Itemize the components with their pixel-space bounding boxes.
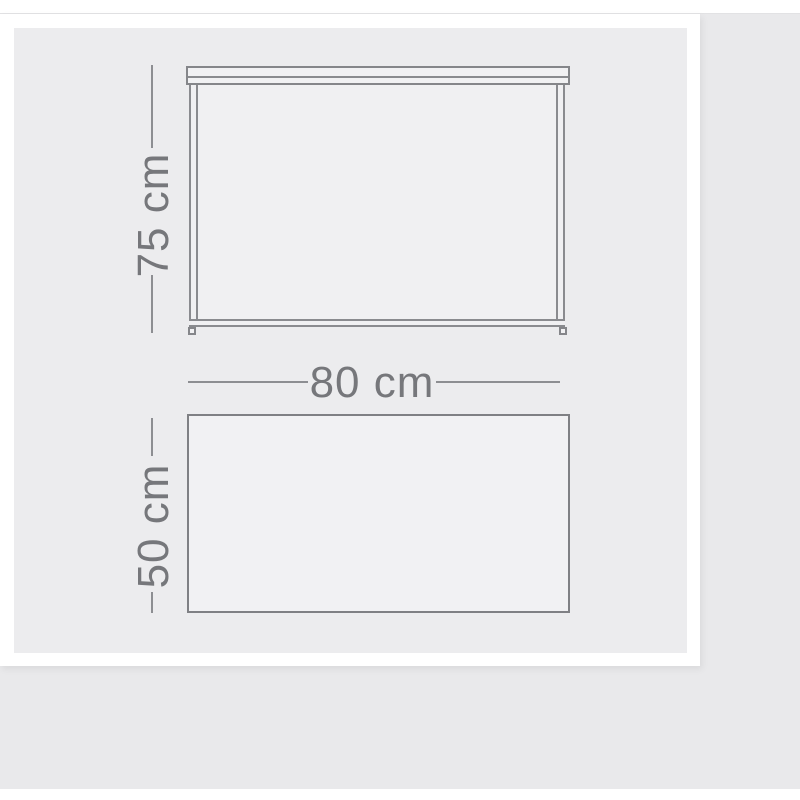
table-bottom-rail <box>189 319 565 327</box>
table-foot-left <box>188 327 196 335</box>
table-foot-right <box>559 327 567 335</box>
tabletop <box>186 66 570 85</box>
dimension-diagram: 75 cm 80 cm 50 cm <box>0 0 800 800</box>
height-dimension-label: 75 cm <box>126 105 182 325</box>
tabletop-edge-line <box>188 76 568 78</box>
table-leg-left <box>189 85 198 321</box>
table-leg-right <box>556 85 565 321</box>
width-dimension-line-right <box>436 381 560 383</box>
depth-dimension-line-lower <box>151 592 153 613</box>
table-top-view <box>187 414 570 613</box>
table-front-interior <box>197 85 557 321</box>
depth-dimension-label: 50 cm <box>126 416 182 636</box>
height-dimension-line-lower <box>151 275 153 333</box>
width-dimension-label: 80 cm <box>262 355 482 411</box>
